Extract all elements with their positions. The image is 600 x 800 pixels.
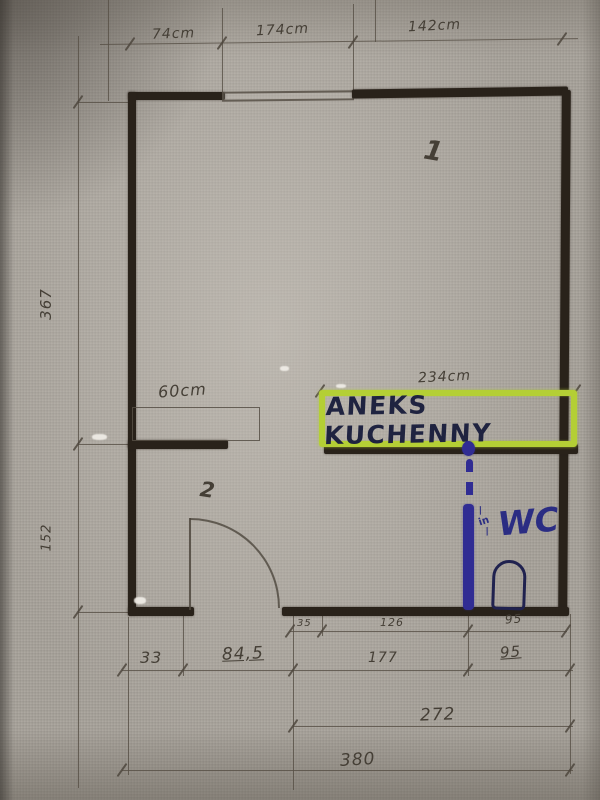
bottom-dim-row-span <box>293 726 573 727</box>
dim-outer-177: 177 <box>368 650 398 666</box>
dim-inner-126: 126 <box>380 616 404 629</box>
dim-top-142: 142cm <box>408 17 462 36</box>
floor-plan-photo: ANEKS KUCHENNY ∕in∕ WC 1 2 74cm 174cm 14… <box>0 0 600 800</box>
extension-line <box>108 0 109 101</box>
paper-speck <box>92 434 107 440</box>
dim-total-380: 380 <box>340 749 376 771</box>
extension-line <box>322 614 323 636</box>
extension-line <box>78 612 130 613</box>
dim-left-152: 152 <box>39 524 54 552</box>
wall-left-upper <box>128 92 136 448</box>
counter-60cm-outline <box>132 407 260 441</box>
extension-line <box>222 8 223 96</box>
dim-outer-95: 95 <box>499 642 521 661</box>
wall-middle-left <box>128 440 228 449</box>
kitchen-annex-label: ANEKS KUCHENNY <box>323 387 572 449</box>
wall-right <box>558 90 571 615</box>
extension-line <box>78 102 130 103</box>
paper-speck <box>336 384 346 388</box>
extension-line <box>353 4 354 96</box>
dim-left-367: 367 <box>37 288 55 320</box>
dim-top-174: 174cm <box>256 21 310 40</box>
wc-label: WC <box>496 499 560 544</box>
extension-line <box>128 617 129 775</box>
room-1-label: 1 <box>421 135 446 169</box>
wall-top-left <box>128 92 225 100</box>
dim-inner-35: 35 <box>297 618 312 629</box>
kitchen-annex-highlight-box: ANEKS KUCHENNY <box>319 390 577 447</box>
window-symbol <box>222 90 354 101</box>
bottom-dim-row-inner <box>290 631 567 632</box>
extension-line <box>375 0 376 42</box>
wall-bottom-left <box>128 607 194 616</box>
extension-line <box>78 444 130 445</box>
paper-speck <box>280 366 289 371</box>
bottom-dim-row-outer <box>122 670 573 671</box>
marker-dashed-wall <box>466 459 473 505</box>
paper-speck <box>134 597 146 604</box>
dim-kitchen-234: 234cm <box>418 368 472 387</box>
marker-dot <box>462 441 475 456</box>
wall-bottom-right <box>282 607 569 616</box>
extension-line <box>293 614 294 790</box>
door-swing-arc <box>190 518 280 608</box>
room-2-label: 2 <box>198 477 217 503</box>
wall-top-right <box>352 86 568 98</box>
dim-outer-33: 33 <box>140 648 162 667</box>
dim-inner-95: 95 <box>505 611 523 626</box>
dim-outer-845: 84,5 <box>222 643 265 664</box>
wall-left-lower <box>128 443 136 615</box>
dim-top-74: 74cm <box>152 25 196 42</box>
left-dimension-line <box>78 36 79 788</box>
dim-counter-60: 60cm <box>157 379 207 401</box>
extension-line <box>570 614 571 774</box>
dim-span-272: 272 <box>420 704 456 725</box>
toilet-symbol <box>491 559 527 610</box>
slash-mark: ∕ <box>484 526 491 538</box>
